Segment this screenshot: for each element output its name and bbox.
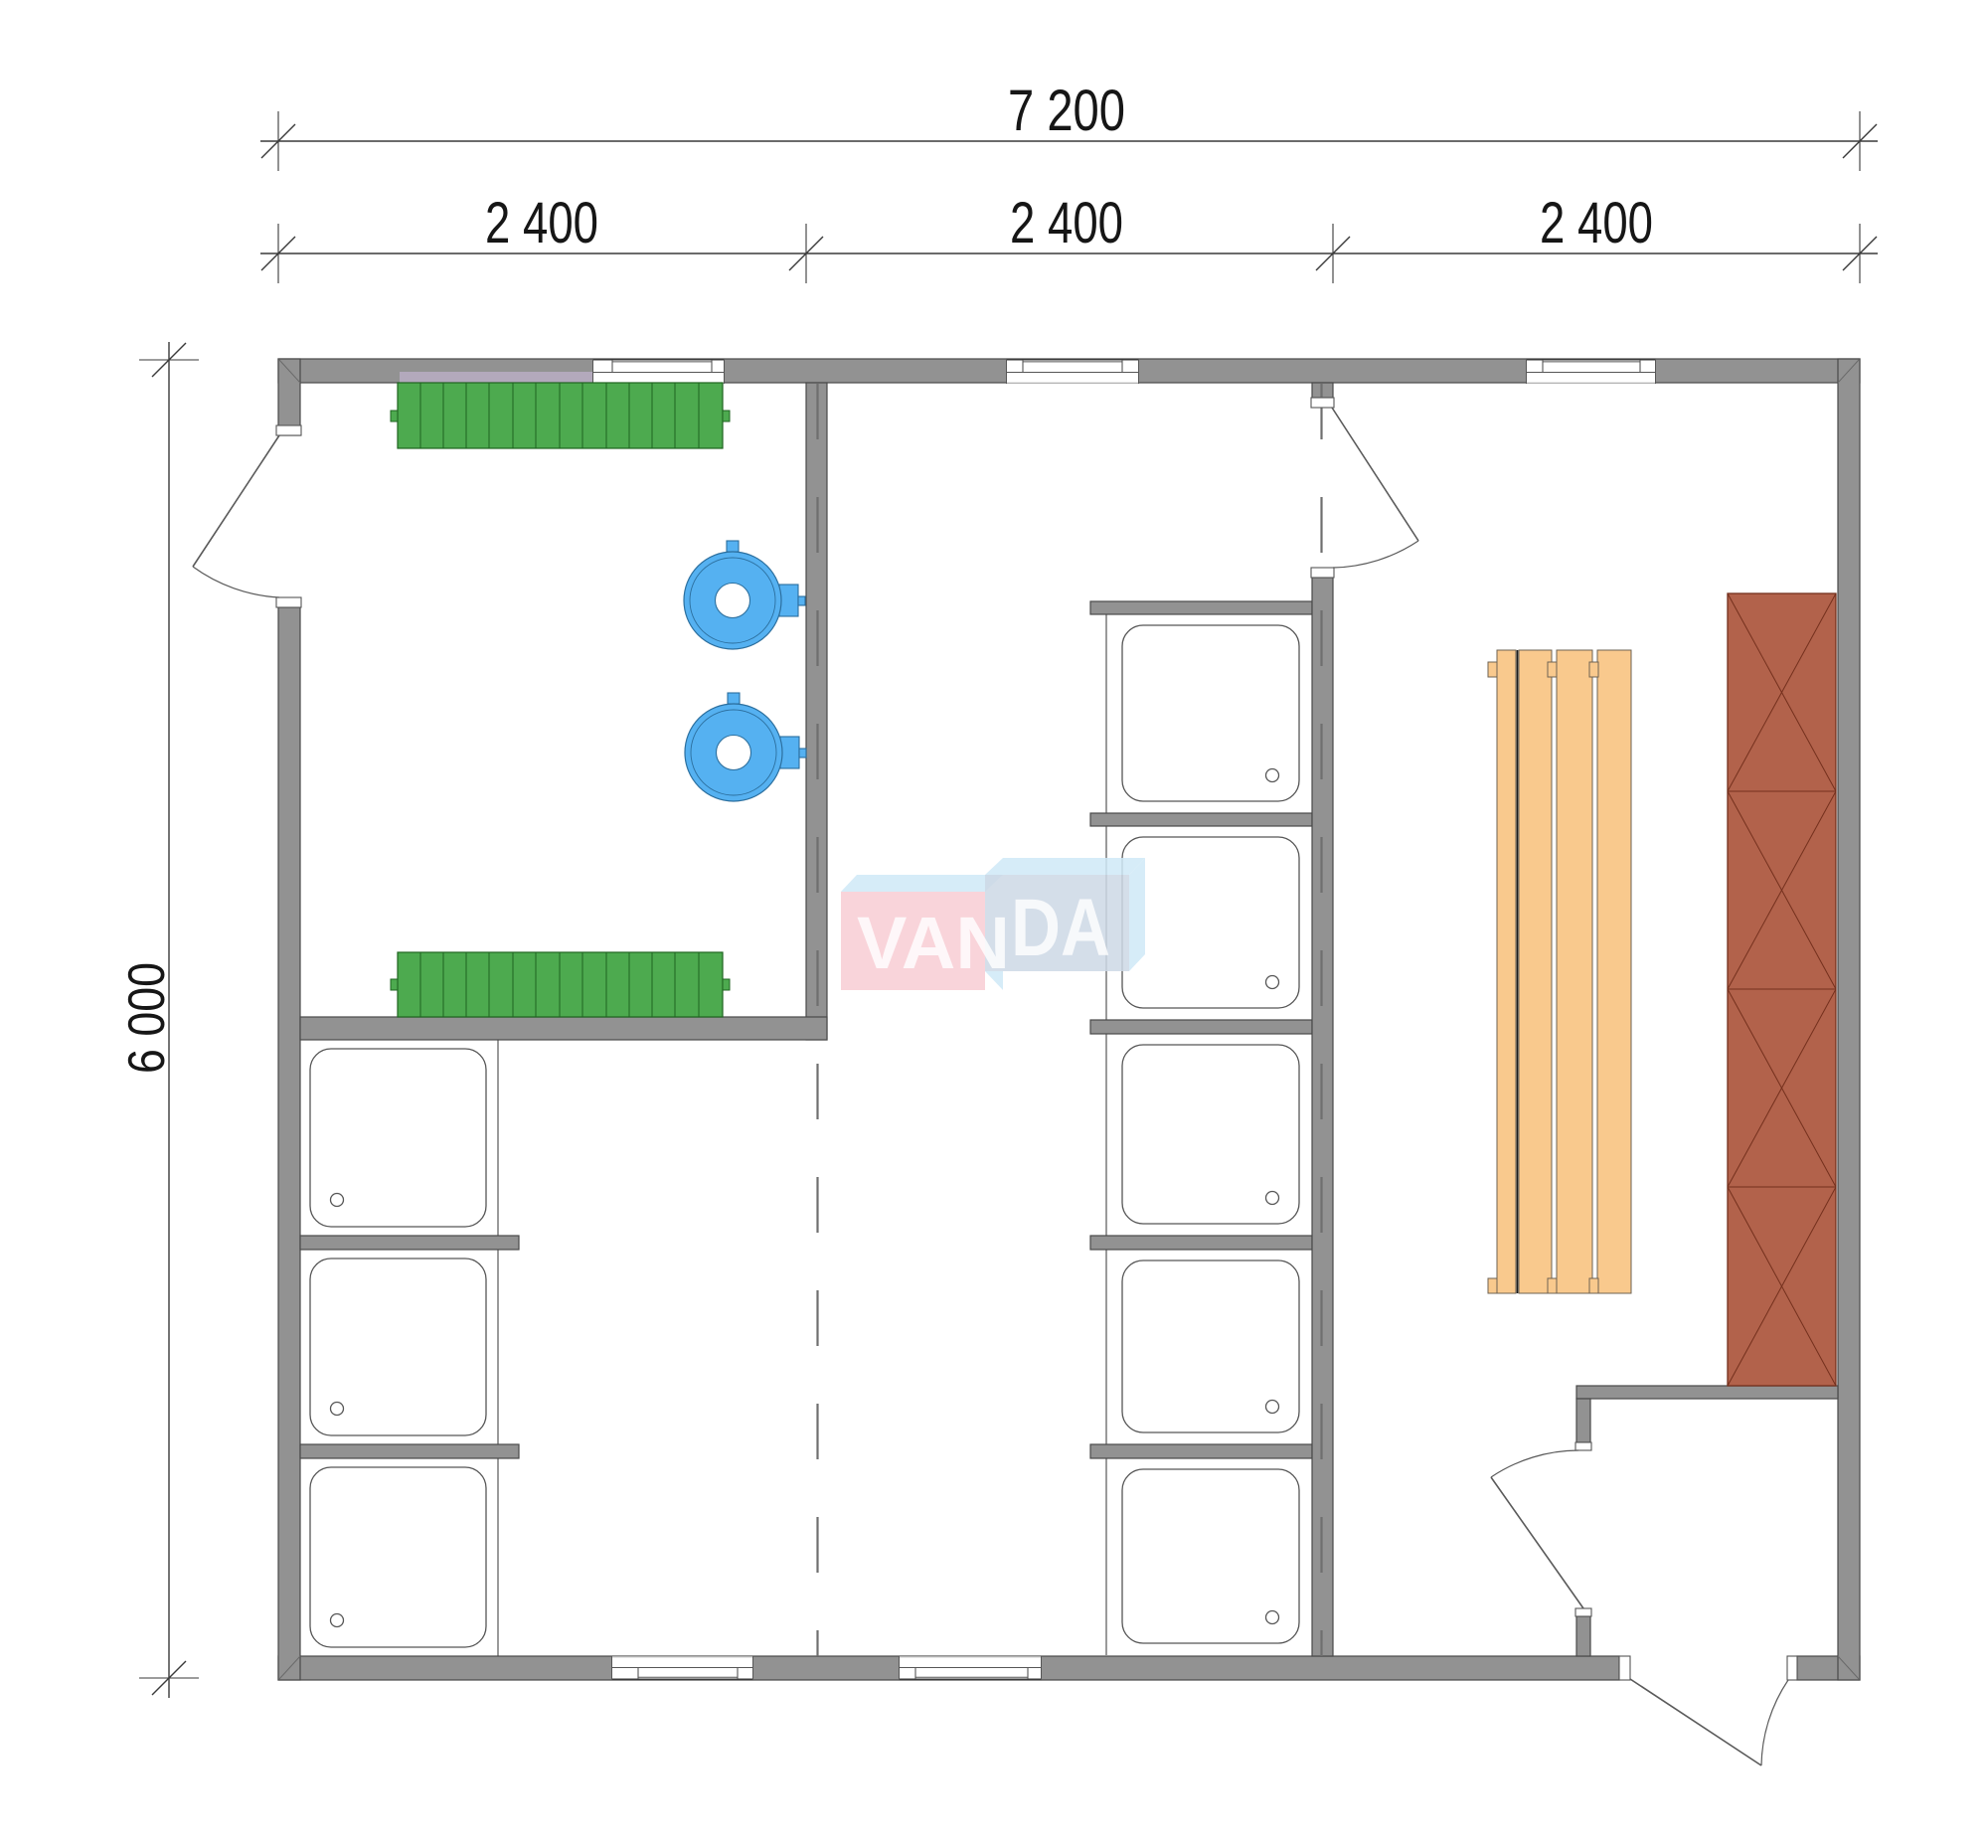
svg-text:VAN: VAN [857,902,1010,984]
svg-text:2 400: 2 400 [485,191,598,255]
svg-text:2 400: 2 400 [1010,191,1123,255]
svg-text:DA: DA [1011,883,1110,973]
svg-text:6 000: 6 000 [118,962,176,1074]
svg-text:7 200: 7 200 [1008,79,1125,143]
svg-text:2 400: 2 400 [1540,191,1653,255]
